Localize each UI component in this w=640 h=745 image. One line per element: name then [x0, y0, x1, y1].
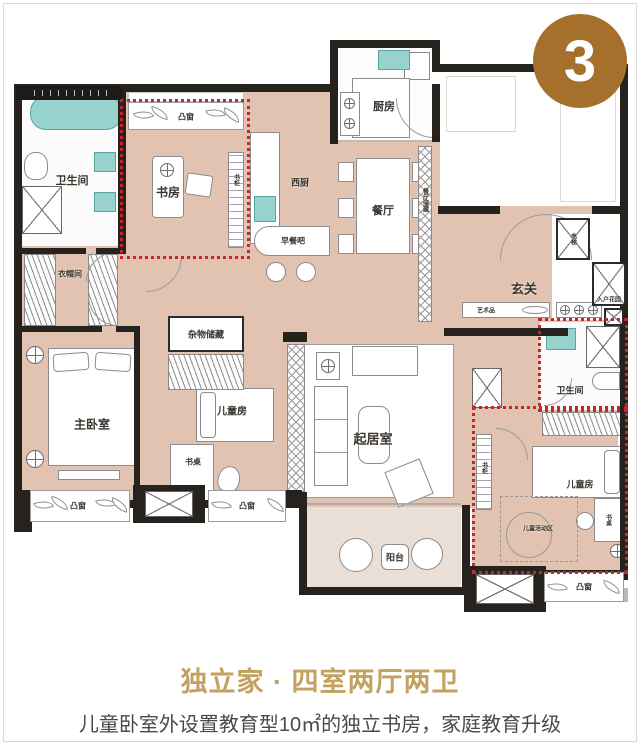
bay-window-label: 凸窗 — [239, 501, 255, 512]
wardrobe — [24, 254, 56, 326]
plan-title: 独立家 · 四室两厅两卫 — [0, 660, 640, 699]
master-bedroom-label: 主卧室 — [74, 416, 110, 433]
sink — [254, 196, 276, 222]
living-room-label: 起居室 — [353, 429, 392, 448]
pillow — [94, 352, 131, 372]
dining-storage-label: 餐厅储藏 — [421, 188, 430, 212]
balcony-label: 阳台 — [386, 551, 404, 564]
wall — [14, 326, 102, 332]
burner-symbol — [344, 98, 355, 109]
shoe-cabinet-symbol — [560, 305, 570, 315]
burner-symbol — [344, 118, 355, 129]
wall — [432, 84, 440, 142]
bar-stool — [296, 262, 316, 282]
highlight-bathroom-2 — [538, 318, 628, 412]
bookshelf-label: 书柜 — [480, 462, 489, 474]
desk-label: 书桌 — [604, 514, 613, 526]
bed-bench — [58, 470, 120, 480]
dining-storage-cabinet — [418, 146, 432, 322]
step-badge-number: 3 — [564, 28, 596, 95]
living-side-cabinet — [287, 344, 305, 492]
sink — [94, 152, 116, 172]
highlight-study — [120, 99, 250, 259]
bathtub — [30, 96, 122, 130]
dining-chair — [338, 162, 354, 182]
wall — [14, 248, 86, 254]
wall — [299, 505, 307, 595]
balcony-chair — [339, 538, 373, 572]
kids-activity-label: 儿童活动区 — [523, 524, 553, 533]
kids-room-1-label: 儿童房 — [217, 403, 247, 418]
wall — [438, 206, 500, 214]
shoe-cabinet-symbol — [574, 305, 584, 315]
shower — [22, 186, 62, 234]
floor-plan: 电梯 入户花园 凸窗 凸窗 凸窗 凸窗 — [0, 0, 640, 640]
porch-structure — [446, 76, 516, 132]
wall — [134, 332, 140, 502]
step-badge: 3 — [533, 14, 627, 108]
artwork-label: 艺术品 — [477, 306, 495, 315]
wall — [286, 490, 302, 508]
entry-garden-label: 入户花园 — [597, 295, 621, 304]
sink — [94, 192, 116, 212]
plan-subtitle: 儿童卧室外设置教育型10㎡的独立书房，家庭教育升级 — [0, 708, 640, 737]
desk-label: 书桌 — [185, 457, 201, 468]
hall-closet — [472, 368, 502, 408]
pillow — [200, 392, 216, 438]
pillow — [52, 352, 89, 372]
nightstand-symbol — [26, 450, 44, 468]
bar-stool — [266, 262, 286, 282]
bay-window-label: 凸窗 — [576, 582, 592, 593]
wall — [330, 40, 338, 144]
dining-label: 餐厅 — [372, 202, 394, 218]
kitchen-label: 厨房 — [373, 98, 395, 114]
breakfast-bar-label: 早餐吧 — [281, 236, 305, 247]
wardrobe — [168, 354, 244, 390]
wall — [283, 332, 307, 342]
bathroom-1-label: 卫生间 — [56, 172, 89, 188]
sliding-door-line — [307, 503, 461, 505]
bay-window-label: 凸窗 — [70, 501, 86, 512]
highlight-kids-room-2 — [472, 406, 628, 574]
dining-chair — [338, 234, 354, 254]
elevator-panel — [476, 574, 534, 604]
nightstand-symbol — [26, 346, 44, 364]
kitchen-dining-line — [338, 140, 432, 142]
lamp-symbol — [321, 359, 335, 373]
kids-room-2-label: 儿童房 — [566, 478, 593, 491]
bay-window-label: 凸窗 — [178, 112, 194, 123]
bookshelf-label: 书柜 — [232, 174, 241, 186]
toilet — [24, 152, 48, 180]
meter-label-bar — [16, 86, 122, 100]
balcony-chair — [411, 538, 443, 570]
sink — [378, 50, 410, 70]
wall — [14, 84, 22, 508]
tv-console — [352, 346, 418, 376]
wall — [299, 587, 469, 595]
artwork-plate — [522, 306, 548, 314]
foyer-label: 玄关 — [511, 279, 537, 298]
wall — [330, 40, 440, 48]
elevator-label: 电梯 — [569, 233, 578, 245]
storage-label: 杂物储藏 — [188, 328, 224, 341]
duct-panel — [145, 491, 193, 517]
study-label: 书房 — [156, 184, 180, 201]
sofa — [314, 386, 348, 486]
page: 电梯 入户花园 凸窗 凸窗 凸窗 凸窗 — [0, 0, 640, 745]
cloakroom-label: 衣帽间 — [58, 269, 82, 280]
west-kitchen-label: 西厨 — [291, 176, 309, 189]
bathroom-2-label: 卫生间 — [556, 384, 583, 397]
dining-chair — [338, 198, 354, 218]
wall — [592, 206, 628, 214]
shoe-cabinet-symbol — [588, 305, 598, 315]
